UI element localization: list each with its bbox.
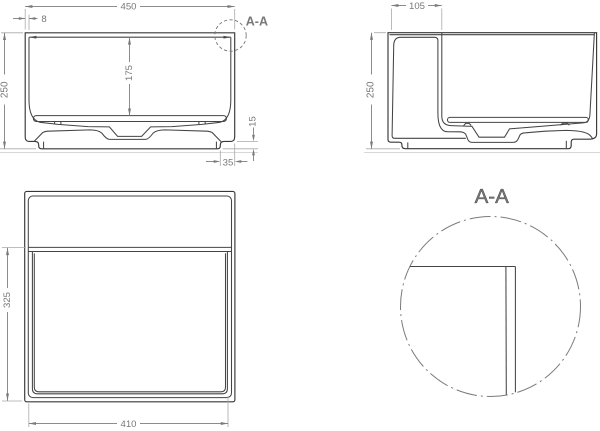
svg-text:410: 410 <box>120 419 136 430</box>
svg-text:35: 35 <box>223 157 234 168</box>
svg-text:250: 250 <box>0 81 10 98</box>
svg-text:450: 450 <box>120 2 136 13</box>
svg-text:A-A: A-A <box>475 185 510 208</box>
svg-text:175: 175 <box>124 65 135 81</box>
svg-text:325: 325 <box>2 292 13 308</box>
svg-text:250: 250 <box>365 81 376 98</box>
svg-text:A-A: A-A <box>246 14 268 28</box>
svg-text:105: 105 <box>409 1 425 12</box>
svg-text:8: 8 <box>41 14 46 25</box>
svg-text:15: 15 <box>247 116 258 127</box>
